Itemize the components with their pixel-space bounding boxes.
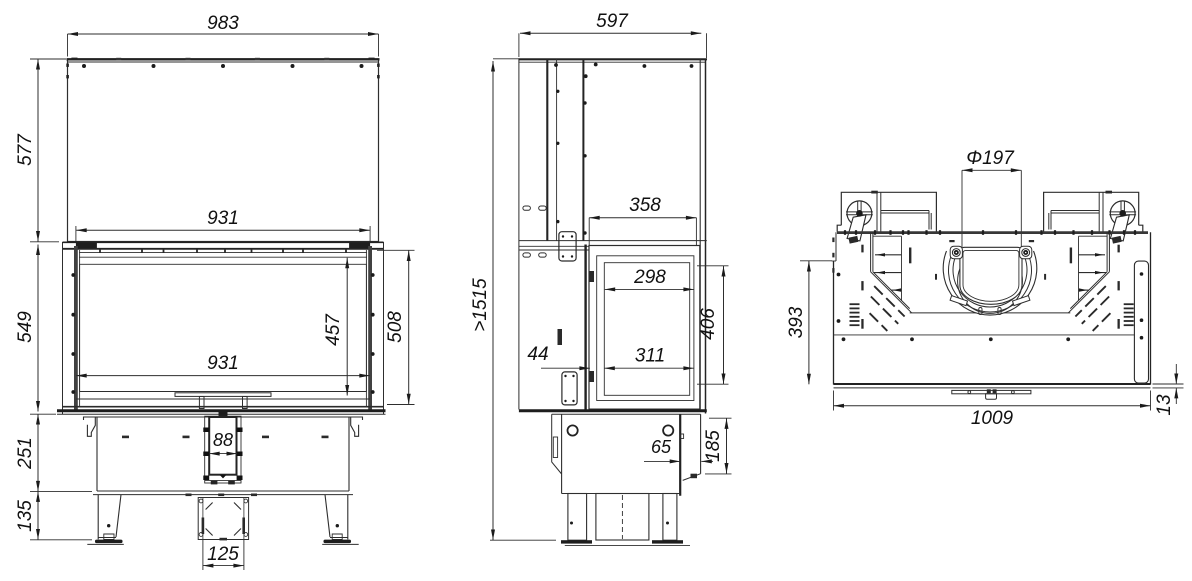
svg-text:44: 44: [527, 344, 548, 365]
svg-text:597: 597: [596, 11, 629, 32]
svg-text:65: 65: [651, 437, 672, 457]
svg-text:457: 457: [323, 313, 344, 346]
svg-text:251: 251: [15, 437, 36, 470]
svg-text:185: 185: [703, 430, 724, 462]
svg-text:931: 931: [207, 353, 239, 374]
svg-text:358: 358: [629, 195, 661, 216]
svg-text:13: 13: [1154, 394, 1175, 416]
svg-text:135: 135: [15, 500, 36, 532]
svg-text:298: 298: [633, 267, 666, 288]
svg-text:1009: 1009: [971, 408, 1014, 429]
svg-text:311: 311: [635, 346, 665, 367]
svg-text:983: 983: [207, 13, 239, 34]
svg-text:577: 577: [15, 133, 36, 166]
svg-text:406: 406: [698, 308, 719, 340]
svg-text:393: 393: [786, 306, 807, 338]
svg-text:549: 549: [15, 311, 36, 343]
svg-text:125: 125: [207, 544, 239, 565]
svg-text:88: 88: [213, 430, 233, 450]
svg-text:931: 931: [207, 208, 239, 229]
svg-text:Φ197: Φ197: [966, 148, 1015, 169]
svg-text:>1515: >1515: [470, 278, 491, 332]
svg-text:508: 508: [385, 311, 406, 343]
